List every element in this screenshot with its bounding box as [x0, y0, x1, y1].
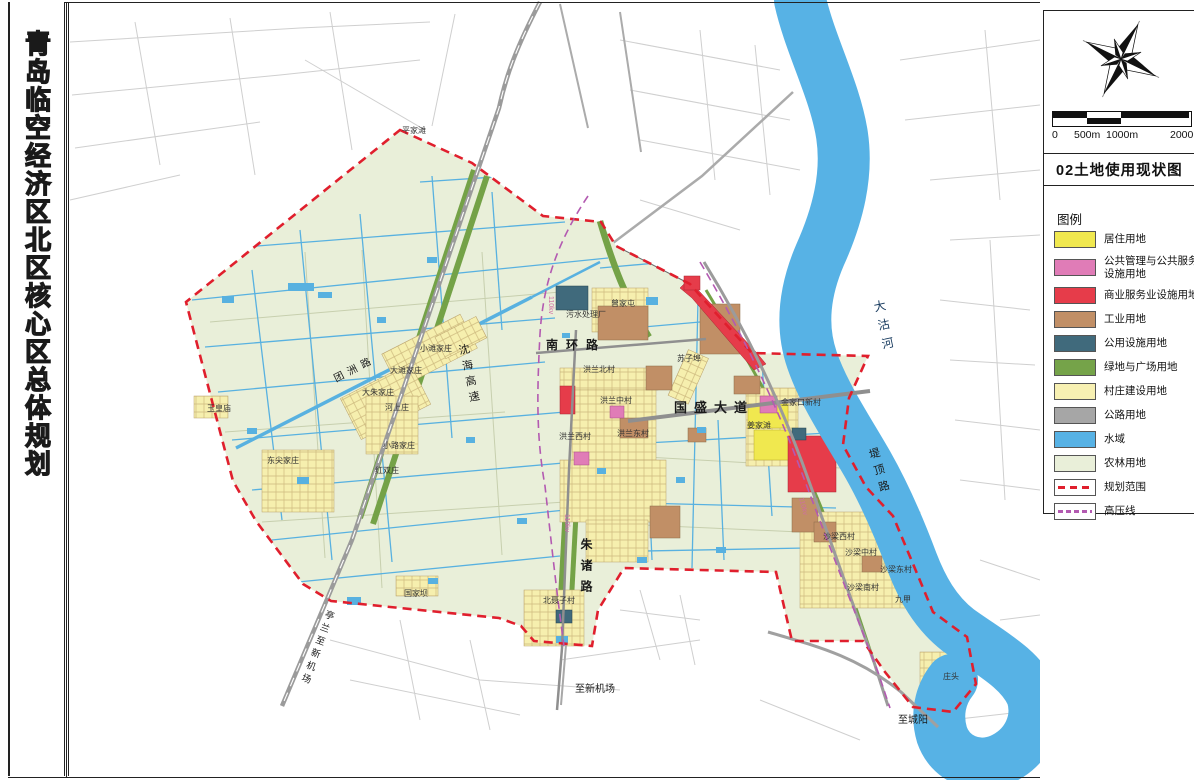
- map-label-road: 至新机场: [575, 682, 615, 695]
- map-title-box: 02土地使用现状图: [1044, 153, 1194, 186]
- plan-title-vertical: 青岛临空经济区北区核心区总体规划: [19, 30, 56, 478]
- map-label-place: 小滩家庄: [420, 343, 452, 353]
- legend-swatch: [1054, 287, 1096, 304]
- map-label-hv: 110kv: [563, 514, 570, 533]
- compass-rose: [1066, 13, 1176, 105]
- map-label-place: 污水处理厂: [566, 309, 606, 319]
- map-label-place: 大朱家庄: [362, 387, 394, 397]
- legend-swatch: [1054, 259, 1096, 276]
- map-label-place: 洪兰中村: [600, 395, 632, 405]
- legend-swatch: [1054, 479, 1096, 496]
- map-label-place: 沙梁南村: [847, 582, 879, 592]
- legend-label: 村庄建设用地: [1104, 385, 1194, 398]
- map-label-place: 苏子埠: [677, 353, 701, 363]
- scale-bar-graphic: [1052, 111, 1192, 127]
- map-label-water: 大沽河: [871, 298, 897, 357]
- scale-label: 500m: [1074, 129, 1100, 141]
- legend-label: 公共管理与公共服务设施用地: [1104, 255, 1194, 280]
- map-label-place: 沙梁中村: [845, 547, 877, 557]
- dashed-line-sample: [1058, 486, 1092, 489]
- map-label-place: 洪兰西村: [559, 431, 591, 441]
- map-label-place: 小路家庄: [383, 440, 415, 450]
- legend-label: 绿地与广场用地: [1104, 361, 1194, 374]
- legend-item: 公路用地: [1054, 407, 1194, 424]
- map-label-road: 至城阳: [898, 714, 928, 726]
- legend-item: 水域: [1054, 431, 1194, 448]
- legend-item: 农林用地: [1054, 455, 1194, 472]
- legend-item: 公共管理与公共服务设施用地: [1054, 255, 1194, 280]
- legend-item: 居住用地: [1054, 231, 1194, 248]
- land-use-map: 南环路国盛大道沈海高速朱诸路堤顶路团洲路亭兰至新机场至新机场至城阳大沽河平家滩曾…: [0, 0, 1194, 780]
- map-label-place: 姜家滩: [747, 420, 771, 430]
- map-label-place: 大滩家庄: [390, 365, 422, 375]
- legend-swatch: [1054, 503, 1096, 520]
- legend-item: 规划范围: [1054, 479, 1194, 496]
- legend-swatch: [1054, 407, 1096, 424]
- legend-label: 公路用地: [1104, 409, 1194, 422]
- map-label-place: 金家口新村: [781, 397, 821, 407]
- legend-label: 农林用地: [1104, 457, 1194, 470]
- scale-labels: 0500m1000m2000m: [1052, 129, 1194, 143]
- map-label-hv: 110kv: [547, 296, 554, 315]
- map-label-place: 河上庄: [385, 402, 409, 412]
- map-label-place: 洪兰东村: [617, 428, 649, 438]
- scale-label: 0: [1052, 129, 1058, 141]
- legend-label: 居住用地: [1104, 233, 1194, 246]
- map-label-road: 南环路: [546, 337, 606, 352]
- map-info-panel: 0500m1000m2000m 02土地使用现状图 图例 居住用地公共管理与公共…: [1040, 0, 1194, 780]
- map-label-place: 北聂子村: [543, 595, 575, 605]
- legend-item: 工业用地: [1054, 311, 1194, 328]
- map-label-place: 九甲: [895, 595, 911, 604]
- legend-item: 商业服务业设施用地: [1054, 287, 1194, 304]
- map-label-place: 曾家屯: [611, 298, 635, 308]
- legend-swatch: [1054, 335, 1096, 352]
- legend-label: 工业用地: [1104, 313, 1194, 326]
- map-label-road: 朱诸路: [579, 537, 593, 601]
- legend-item: 高压线: [1054, 503, 1194, 520]
- map-label-road: 国盛大道: [674, 400, 754, 415]
- title-bar-divider: [68, 2, 69, 776]
- legend-title: 图例: [1057, 209, 1082, 228]
- map-label-place: 沙梁东村: [880, 564, 912, 574]
- outside-main-roads: [560, 4, 793, 243]
- legend-list: 居住用地公共管理与公共服务设施用地商业服务业设施用地工业用地公用设施用地绿地与广…: [1054, 231, 1194, 520]
- map-label-place: 国家坝: [404, 588, 428, 598]
- sheet-title-bar: 青岛临空经济区北区核心区总体规划: [8, 2, 65, 776]
- map-label-place: 平家滩: [402, 125, 426, 135]
- map-label-place: 洪兰北村: [583, 364, 615, 374]
- legend-swatch: [1054, 383, 1096, 400]
- legend-label: 商业服务业设施用地: [1104, 289, 1194, 302]
- dashdot-line-sample: [1058, 510, 1092, 513]
- legend-swatch: [1054, 231, 1096, 248]
- legend-swatch: [1054, 455, 1096, 472]
- legend-item: 公用设施用地: [1054, 335, 1194, 352]
- map-label-place: 沙梁西村: [823, 531, 855, 541]
- map-title: 02土地使用现状图: [1044, 159, 1183, 180]
- legend-label: 高压线: [1104, 505, 1194, 518]
- legend-swatch: [1054, 311, 1096, 328]
- legend-label: 水域: [1104, 433, 1194, 446]
- legend-swatch: [1054, 359, 1096, 376]
- legend-item: 村庄建设用地: [1054, 383, 1194, 400]
- legend-label: 公用设施用地: [1104, 337, 1194, 350]
- map-label-place: 庄头: [943, 671, 959, 681]
- scale-label: 2000m: [1170, 129, 1194, 141]
- info-box: 0500m1000m2000m 02土地使用现状图 图例 居住用地公共管理与公共…: [1043, 10, 1194, 514]
- plan-sheet: { "sheet": { "side_title": "青岛临空经济区北区核心区…: [0, 0, 1194, 780]
- legend-item: 绿地与广场用地: [1054, 359, 1194, 376]
- scale-bar: 0500m1000m2000m: [1050, 109, 1194, 153]
- map-label-place: 东尖家庄: [267, 455, 299, 465]
- map-label-place: 玉皇庙: [207, 403, 231, 413]
- legend-label: 规划范围: [1104, 481, 1194, 494]
- map-label-place: 红双庄: [375, 465, 399, 475]
- legend-swatch: [1054, 431, 1096, 448]
- scale-label: 1000m: [1106, 129, 1138, 141]
